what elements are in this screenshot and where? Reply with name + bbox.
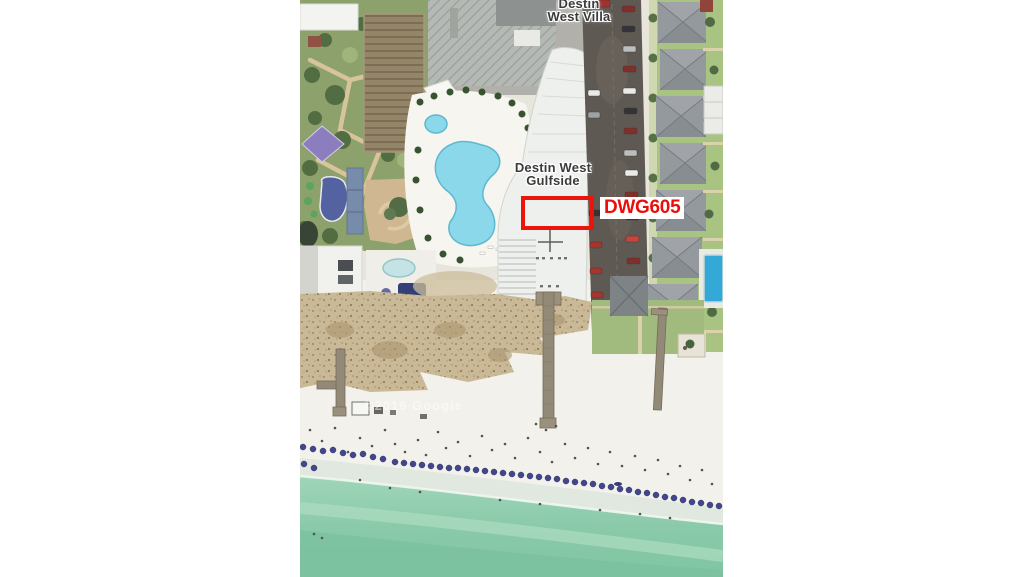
unit-highlight-box xyxy=(521,196,594,230)
unit-code-label: DWG605 xyxy=(600,197,684,219)
gulfside-label: Destin West Gulfside xyxy=(493,161,613,187)
villa-label: Destin West Villa xyxy=(519,0,639,23)
satellite-scene xyxy=(300,0,723,577)
haze-overlay xyxy=(300,0,723,577)
villa-label-line2: West Villa xyxy=(519,10,639,23)
gulfside-label-line2: Gulfside xyxy=(493,174,613,187)
aerial-photo: Destin West Villa Destin West Gulfside D… xyxy=(300,0,723,577)
imagery-watermark: ©2016 Google xyxy=(364,398,463,413)
